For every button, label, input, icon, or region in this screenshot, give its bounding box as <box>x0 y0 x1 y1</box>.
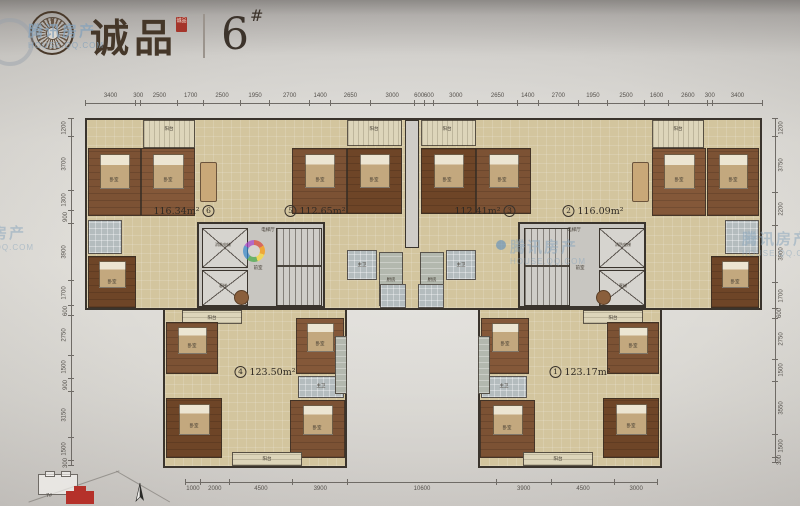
dim-segment: 3000 <box>371 100 415 106</box>
dim-value: 2000 <box>208 486 221 492</box>
bathroom <box>418 284 444 308</box>
unit-label-3: 3 112.41m² <box>454 205 515 217</box>
room-label: 卧室 <box>316 177 325 183</box>
dim-value: 2500 <box>619 93 632 99</box>
watermark-left-edge: 腾讯房产 HOUSE.QQ.COM <box>0 222 34 252</box>
dimension-chain-top: 3400300250017002500195027001400265030006… <box>85 100 763 106</box>
dim-value: 1700 <box>61 286 67 299</box>
brand-title: 诚品 <box>90 8 178 64</box>
sofa <box>632 162 649 202</box>
keyplan-current-building <box>66 486 96 506</box>
room-label: 消防电梯 <box>215 242 231 248</box>
dim-segment: 1700 <box>772 283 778 309</box>
dim-segment: 1500 <box>68 356 74 378</box>
dim-value: 2700 <box>552 93 565 99</box>
dim-value: 1200 <box>61 121 67 134</box>
room-label: 主卫 <box>500 383 509 389</box>
unit-area: 112.65m² <box>299 206 345 217</box>
room-label: 卧室 <box>627 423 636 429</box>
room-label: 消防电梯 <box>615 242 631 248</box>
unit-number-circle: 2 <box>562 205 574 217</box>
dim-segment: 2600 <box>669 100 708 106</box>
dim-segment: 1400 <box>518 100 539 106</box>
dim-value: 1950 <box>248 93 261 99</box>
kitchen <box>478 336 490 394</box>
dim-segment: 2700 <box>539 100 579 106</box>
dim-value: 600 <box>63 306 69 316</box>
dim-value: 3550 <box>779 401 785 414</box>
fire-elevator-shaft <box>202 228 248 268</box>
watermark-ring-icon <box>0 18 34 66</box>
dim-segment: 4500 <box>552 479 616 485</box>
dim-value: 3900 <box>517 486 530 492</box>
kitchen <box>335 336 347 394</box>
room-label: 电梯厅 <box>261 227 275 233</box>
dim-segment: 1950 <box>579 100 608 106</box>
balcony <box>347 120 402 146</box>
balcony <box>421 120 476 146</box>
unit-label-5: 5 112.65m² <box>284 205 345 217</box>
room-label: 卧室 <box>188 343 197 349</box>
unit-label-1: 1 123.17m² <box>549 366 610 378</box>
dim-segment: 1400 <box>310 100 331 106</box>
unit-number-circle: 6 <box>203 205 215 217</box>
dim-value: 3900 <box>61 245 67 258</box>
dim-value: 3400 <box>104 93 117 99</box>
dim-value: 4500 <box>576 486 589 492</box>
dim-segment: 2000 <box>201 479 230 485</box>
room-label: 主卫 <box>358 262 367 268</box>
dim-value: 3900 <box>314 486 327 492</box>
dim-value: 4500 <box>254 486 267 492</box>
room-label: 卧室 <box>731 279 740 285</box>
room-label: 主卫 <box>457 262 466 268</box>
dim-segment: 2650 <box>331 100 370 106</box>
dim-value: 2650 <box>491 93 504 99</box>
brand-logo-icon <box>30 11 74 55</box>
unit-area: 123.17m² <box>564 367 610 378</box>
dim-value: 2200 <box>779 202 785 215</box>
brand-seal-stamp: 诚品 <box>176 17 187 32</box>
building-number-digit: 6 <box>221 9 249 60</box>
dim-segment: 3000 <box>434 100 478 106</box>
room-label: 卧室 <box>190 423 199 429</box>
dim-value: 1000 <box>186 486 199 492</box>
room-label: 卧室 <box>164 177 173 183</box>
dim-segment: 2750 <box>772 319 778 360</box>
room-label: 前室 <box>576 265 585 271</box>
dim-segment: 300 <box>772 458 778 463</box>
unit-number-circle: 5 <box>284 205 296 217</box>
dim-value: 300 <box>63 458 69 468</box>
dim-value: 600 <box>414 93 424 99</box>
balcony <box>143 120 195 148</box>
dim-segment: 900 <box>68 379 74 393</box>
unit-label-2: 2 116.09m² <box>562 205 623 217</box>
dim-value: 900 <box>63 380 69 390</box>
dim-segment: 3000 <box>615 479 658 485</box>
dim-segment: 2500 <box>141 100 178 106</box>
building-number-suffix: # <box>250 6 263 25</box>
bathroom <box>380 284 406 308</box>
dim-value: 2500 <box>215 93 228 99</box>
dim-value: 1200 <box>779 121 785 134</box>
dim-segment: 1300 <box>68 191 74 211</box>
dimension-chain-left: 1200370013009003900170060027501500900315… <box>68 118 74 466</box>
dim-value: 3150 <box>61 408 67 421</box>
room-label: 阳台 <box>609 315 618 321</box>
room-label: 阳台 <box>443 126 452 132</box>
north-arrow-icon <box>130 482 150 506</box>
dim-value: 1950 <box>586 93 599 99</box>
dim-value: 1400 <box>521 93 534 99</box>
unit-area: 116.34m² <box>153 206 199 217</box>
room-label: 厨房 <box>428 277 437 283</box>
room-label: 卧室 <box>675 177 684 183</box>
room-label: 客梯 <box>219 283 227 289</box>
dim-value: 1500 <box>779 439 785 452</box>
unit-label-6: 6 116.34m² <box>153 205 214 217</box>
dim-segment: 3400 <box>86 100 136 106</box>
unit-label-4: 4 123.50m² <box>234 366 295 378</box>
dim-value: 600 <box>777 308 783 318</box>
unit-number-circle: 3 <box>504 205 516 217</box>
dim-segment: 600 <box>425 100 435 106</box>
dim-value: 1600 <box>650 93 663 99</box>
dim-segment: 1950 <box>241 100 270 106</box>
room-label: 卧室 <box>503 425 512 431</box>
dim-segment: 3900 <box>293 479 348 485</box>
dim-value: 2500 <box>153 93 166 99</box>
dim-segment: 1600 <box>645 100 669 106</box>
dim-segment: 3900 <box>772 226 778 284</box>
dim-value: 2700 <box>283 93 296 99</box>
dim-value: 600 <box>424 93 434 99</box>
bathroom <box>88 220 122 254</box>
bathroom <box>725 220 759 254</box>
dim-value: 1700 <box>184 93 197 99</box>
room-label: 卧室 <box>729 177 738 183</box>
dim-value: 1500 <box>61 442 67 455</box>
dim-segment: 1200 <box>68 119 74 137</box>
room-label: 电梯厅 <box>567 227 581 233</box>
dim-segment: 2700 <box>270 100 310 106</box>
dining-table <box>596 290 611 305</box>
unit-area: 116.09m² <box>577 206 623 217</box>
room-label: 卧室 <box>108 279 117 285</box>
dim-segment: 4500 <box>230 479 294 485</box>
dim-segment: 2500 <box>204 100 241 106</box>
dim-segment: 1200 <box>772 119 778 137</box>
room-label: 阳台 <box>263 456 272 462</box>
dim-value: 10600 <box>414 486 431 492</box>
dim-value: 2750 <box>779 332 785 345</box>
room-label: 卧室 <box>110 177 119 183</box>
dim-value: 3000 <box>449 93 462 99</box>
dim-value: 3700 <box>61 157 67 170</box>
room-label: 卧室 <box>370 177 379 183</box>
room-label: 客梯 <box>619 283 627 289</box>
dim-segment: 2200 <box>772 193 778 226</box>
floorplan-photo: 诚品 诚品 6# 腾讯房产 HOUSE.QQ.COM 腾讯房产 HOUSE.QQ… <box>0 0 800 506</box>
dim-value: 1300 <box>61 194 67 207</box>
room-label: 阳台 <box>165 126 174 132</box>
dim-value: 2650 <box>344 93 357 99</box>
dim-value: 300 <box>133 93 143 99</box>
staircase <box>276 228 322 306</box>
dim-value: 2750 <box>61 329 67 342</box>
dim-value: 1500 <box>779 364 785 377</box>
balcony <box>652 120 704 148</box>
dim-segment: 1000 <box>186 479 201 485</box>
dim-segment: 2750 <box>68 316 74 356</box>
room-label: 阳台 <box>370 126 379 132</box>
room-label: 卧室 <box>629 343 638 349</box>
dim-segment: 600 <box>772 309 778 319</box>
room-label: 主卫 <box>317 383 326 389</box>
dim-segment: 3750 <box>772 137 778 192</box>
dim-segment: 2500 <box>608 100 645 106</box>
dining-table <box>234 290 249 305</box>
dim-segment: 600 <box>415 100 425 106</box>
dim-segment: 600 <box>68 306 74 316</box>
dim-value: 3000 <box>629 486 642 492</box>
dim-segment: 3700 <box>68 137 74 191</box>
dim-segment: 3550 <box>772 382 778 435</box>
room-label: 卧室 <box>443 177 452 183</box>
fire-elevator-shaft <box>599 228 645 268</box>
dim-value: 1400 <box>314 93 327 99</box>
header-divider <box>203 14 205 58</box>
unit-area: 112.41m² <box>454 206 500 217</box>
dim-segment: 3900 <box>68 224 74 281</box>
dim-segment: 900 <box>68 211 74 225</box>
room-label: 卧室 <box>313 425 322 431</box>
rosette-pattern <box>36 17 69 50</box>
dim-segment: 3150 <box>68 392 74 438</box>
dim-value: 300 <box>705 93 715 99</box>
dim-segment: 1500 <box>772 360 778 383</box>
qq-logo-icon <box>243 240 265 262</box>
dim-value: 2600 <box>681 93 694 99</box>
room-label: 阳台 <box>674 126 683 132</box>
watermark-en-text: HOUSE.QQ.COM <box>0 243 34 252</box>
room-label: 前室 <box>254 265 263 271</box>
unit-number-circle: 1 <box>549 366 561 378</box>
staircase <box>524 228 570 306</box>
dim-value: 1500 <box>61 360 67 373</box>
keyplan-neighbor-label: 7# <box>46 493 52 499</box>
dimension-chain-right: 1200375022003900170060027501500355015003… <box>772 118 778 463</box>
dim-value: 900 <box>63 212 69 222</box>
dim-segment: 10600 <box>348 479 496 485</box>
room-label: 厨房 <box>387 277 396 283</box>
sofa <box>200 162 217 202</box>
room-label: 卧室 <box>498 177 507 183</box>
dim-value: 3900 <box>779 247 785 260</box>
dim-segment: 2650 <box>478 100 517 106</box>
dim-value: 3000 <box>386 93 399 99</box>
watermark-cn-text: 腾讯房产 <box>0 222 34 243</box>
dim-segment: 300 <box>68 461 74 466</box>
unit-number-circle: 4 <box>234 366 246 378</box>
room-label: 阳台 <box>554 456 563 462</box>
dim-value: 1700 <box>779 289 785 302</box>
room-label: 阳台 <box>208 315 217 321</box>
room-label: 卧室 <box>501 341 510 347</box>
qq-dot-icon <box>496 240 506 250</box>
dim-value: 3400 <box>731 93 744 99</box>
dim-segment: 3900 <box>497 479 552 485</box>
building-number: 6# <box>221 6 263 60</box>
dim-segment: 3400 <box>713 100 763 106</box>
room-label: 卧室 <box>316 341 325 347</box>
light-well-shaft <box>405 120 419 248</box>
dim-value: 3750 <box>779 158 785 171</box>
unit-area: 123.50m² <box>249 367 295 378</box>
dim-segment: 1700 <box>68 281 74 306</box>
dim-value: 300 <box>777 455 783 465</box>
dim-segment: 1700 <box>178 100 204 106</box>
dimension-chain-bottom: 100020004500390010600390045003000 <box>185 479 658 485</box>
